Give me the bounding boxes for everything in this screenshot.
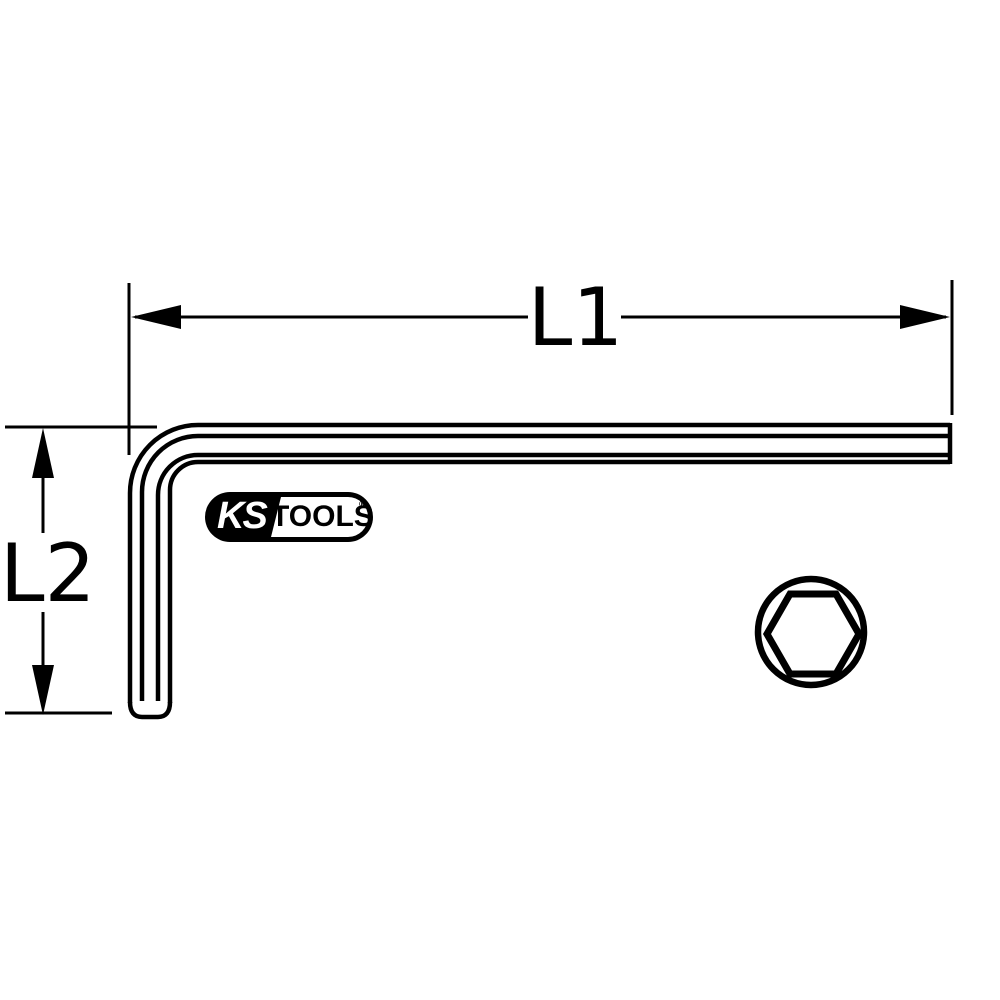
l1-arrowhead-right-icon [900,305,950,329]
l2-arrowhead-top-icon [32,428,54,478]
l2-arrowhead-bottom-icon [32,665,54,715]
hex-key-facet-line-1 [142,436,950,701]
hex-key-outer-contour [130,425,950,703]
product-drawing-canvas: L1 L2 KS TOOLS ® [0,0,1000,1000]
extension-lines [5,280,952,713]
dimension-label-l1: L1 [518,278,633,358]
dimension-label-l2: L2 [0,534,94,614]
hex-key-line-drawing [0,0,1000,1000]
l1-arrowhead-left-icon [131,305,181,329]
logo-ks-text: KS [217,494,266,538]
ks-tools-logo: KS TOOLS ® [205,492,373,542]
registered-trademark-icon: ® [358,501,367,510]
hex-section-view [758,579,864,685]
hex-key-bottom-end-cap [130,702,170,717]
hexagon-icon [767,594,859,674]
logo-tools-text: TOOLS [271,497,367,537]
